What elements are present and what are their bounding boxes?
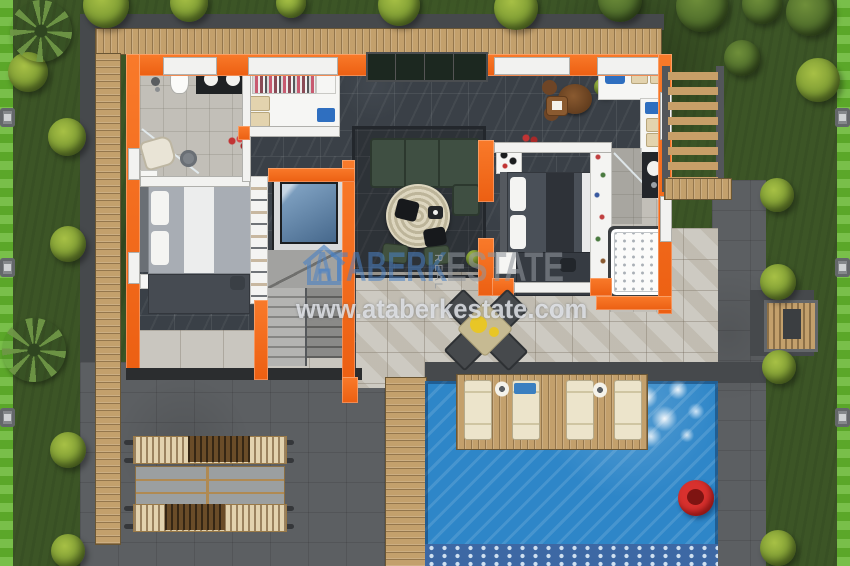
accent-chair-green <box>381 243 409 265</box>
pool-float-center <box>687 489 704 505</box>
bed-runner <box>184 187 214 273</box>
window-left <box>128 252 140 284</box>
floor-plan-render: ATABERK REAL ESTATE www.ataberkestate.co… <box>0 0 850 566</box>
wall-bathL-bottom <box>140 176 250 187</box>
side-table <box>546 96 568 116</box>
duvet-band <box>546 173 574 253</box>
wall-stairs-right <box>342 160 355 380</box>
grass-strip-left <box>0 0 13 566</box>
bush <box>796 58 840 102</box>
wall-bottom-dark <box>126 368 362 380</box>
window-top <box>248 57 338 75</box>
wall-bathL-right <box>242 62 251 182</box>
window-right <box>660 196 672 242</box>
window-top <box>163 57 217 75</box>
window-top <box>494 57 570 75</box>
pergola-slats-top-dark <box>188 436 250 462</box>
bush <box>762 350 796 384</box>
table-tray <box>552 101 562 110</box>
closet-bin-blue <box>317 108 335 122</box>
deck-poolside <box>385 377 427 566</box>
fence-post <box>0 258 15 277</box>
lounger-towel <box>514 383 536 394</box>
pool-float-ring <box>678 480 714 516</box>
shower-zone <box>612 148 642 224</box>
wall-closet-stub <box>238 126 250 140</box>
bush <box>760 264 796 300</box>
garden-bench <box>764 300 818 352</box>
bush <box>48 118 86 156</box>
deck-top <box>95 28 662 55</box>
wall-closet-bottom <box>246 126 340 137</box>
sun-lounger <box>614 380 642 440</box>
bed-left-headboard <box>140 186 148 272</box>
fence-post <box>835 108 850 127</box>
bush <box>51 534 85 566</box>
patio-sliding-door <box>514 282 592 293</box>
wall-kitchen-bedroom <box>494 142 612 153</box>
bush <box>760 178 794 212</box>
deck-flower <box>593 382 607 398</box>
coffee-table <box>428 206 443 219</box>
sun-lounger <box>464 380 492 440</box>
deck-flower <box>495 381 509 397</box>
dining-chair <box>542 80 557 95</box>
fence-post <box>835 408 850 427</box>
sofa <box>370 138 480 188</box>
closet-drawer <box>249 96 270 111</box>
bush <box>50 432 86 468</box>
wall-post <box>590 278 612 296</box>
bed-right-mattress <box>507 172 591 254</box>
window-left <box>128 148 140 180</box>
elevator-shaft <box>272 174 346 252</box>
shower-head-icon <box>151 77 160 86</box>
patio-plate-yellow <box>470 316 487 333</box>
pergola-slats-bottom-dark <box>165 504 225 530</box>
sun-lounger <box>566 380 594 440</box>
table-decor-dot <box>433 210 438 215</box>
round-rug-small <box>180 150 197 167</box>
dresser-media-strip <box>250 176 268 304</box>
pillow <box>151 231 169 265</box>
deck-left <box>95 53 121 545</box>
pillow <box>151 191 169 225</box>
wall-left <box>126 54 140 380</box>
stairs-landing <box>268 250 342 288</box>
fence-post <box>0 408 15 427</box>
sofa-chaise <box>452 184 480 216</box>
stairs-flight-left <box>268 288 307 366</box>
side-deck-step <box>664 178 732 200</box>
patio-plate-yellow <box>489 327 499 337</box>
pouf <box>560 258 576 272</box>
balcony-glass <box>366 52 488 82</box>
accent-chair-green <box>423 245 451 267</box>
elevator-glass <box>280 182 338 244</box>
faucet-dot <box>651 182 657 188</box>
pergola-side-slats <box>668 72 718 188</box>
window-top <box>597 57 659 75</box>
wall-corner-block <box>342 377 358 403</box>
wall-bedroomR-left <box>478 140 494 202</box>
bush <box>760 530 796 566</box>
wall-above-elevator <box>268 168 355 182</box>
fence-post <box>0 108 15 127</box>
pergola-table-slab <box>135 466 285 508</box>
bed-left-mattress <box>148 186 254 274</box>
bush <box>50 226 86 262</box>
tree <box>724 40 760 76</box>
pool-mosaic-edge <box>425 544 718 566</box>
stairs-flight-right <box>307 288 342 358</box>
driveway-pavement <box>80 362 425 566</box>
closet-drawer <box>249 112 270 127</box>
bench-backrest <box>783 309 801 339</box>
pillow <box>510 177 526 211</box>
pouf <box>230 276 245 290</box>
wall-bathR-bottom <box>596 296 672 310</box>
fence-post <box>835 258 850 277</box>
bed-right-headboard <box>500 172 507 252</box>
palm-tree <box>2 318 66 382</box>
palm-tree <box>10 0 72 62</box>
bed-foot-band <box>582 173 590 253</box>
pillow <box>510 215 526 249</box>
wall-stairs-left <box>254 300 268 380</box>
